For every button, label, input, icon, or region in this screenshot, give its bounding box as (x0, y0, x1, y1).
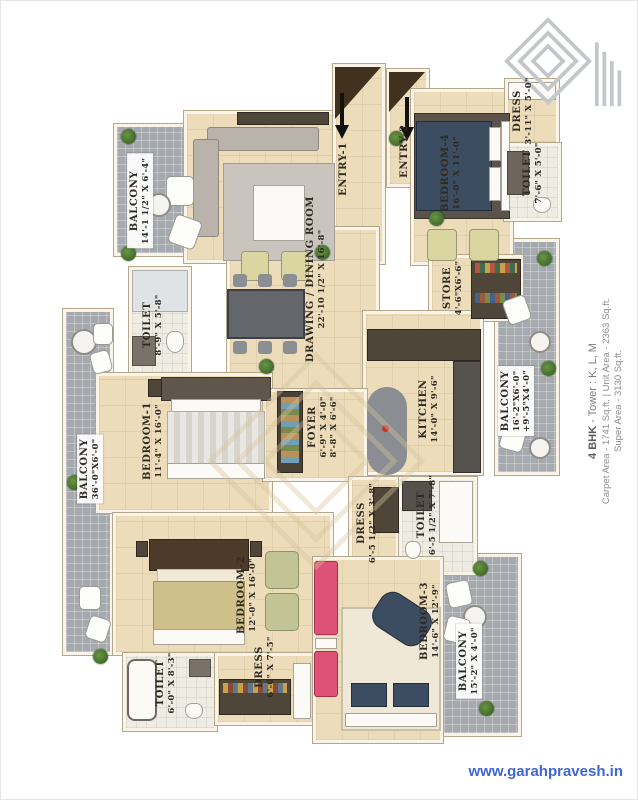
plant-icon (259, 359, 274, 374)
room-label-toilet-left: TOILET8'-9" X 5'-8" (142, 294, 164, 355)
bedroom4-chair (427, 229, 457, 261)
balcony-chair (93, 323, 113, 345)
room-label-drawing-dining: DRAWING / DINING ROOM22'-10 1/2" X 16'-8… (305, 196, 327, 362)
plant-icon (473, 561, 488, 576)
cabinet-shelves (281, 397, 299, 463)
unit-info-line1: 4 BHK - Tower : K, L, M (587, 281, 599, 521)
bedroom2-chair (265, 593, 299, 631)
balcony-table (529, 437, 551, 459)
bedroom2-bed (153, 581, 245, 631)
floor-plan-page: BALCONY14'-1 1/2" X 6'-4" BALCONY36'-0"X… (0, 0, 638, 800)
wardrobe-clothes (475, 263, 517, 273)
website-link[interactable]: www.garahpravesh.in (431, 763, 623, 780)
room-label-balcony-left: BALCONY36'-0"X6'-0" (77, 435, 103, 504)
bedroom1-duvet (167, 463, 265, 479)
plant-icon (121, 246, 136, 261)
room-label-toilet-center: TOILET6'-5 1/2" X 7'-8" (416, 475, 438, 555)
plant-icon (537, 251, 552, 266)
side-table (315, 638, 337, 649)
bathtub (127, 659, 157, 721)
nightstand (136, 541, 148, 557)
room-label-balcony-br: BALCONY15'-2" X 4'-0" (456, 623, 482, 698)
bedroom3-pink-sofa (314, 561, 338, 635)
room-label-balcony-tl: BALCONY14'-1 1/2" X 6'-4" (127, 154, 153, 249)
entry2-label: ENTRY-2 (399, 124, 411, 178)
kitchen-counter-right (453, 361, 481, 473)
room-label-bedroom2: BEDROOM-212'-0" X 16'-0" (236, 556, 258, 634)
washbasin (189, 659, 211, 677)
room-label-toilet-tr: TOILET7'-6" X 5'-0" (522, 142, 544, 203)
room-label-dress-bottom: DRESS6'-0" X 7'-5" (254, 636, 276, 697)
bedroom3-footboard (345, 713, 437, 727)
plant-icon (121, 129, 136, 144)
stove-burner (382, 425, 389, 432)
plant-icon (479, 701, 494, 716)
nightstand (250, 541, 262, 557)
dining-chair (233, 341, 247, 354)
room-label-store: STORE4'-6"X6'-6" (442, 261, 464, 316)
sofa-top (207, 127, 319, 151)
room-label-bedroom4: BEDROOM-416'-0" X 11'-0" (440, 134, 462, 212)
bedroom2-headboard (149, 539, 249, 571)
entry1-label: ENTRY-1 (338, 142, 350, 196)
bathtub-center (439, 481, 473, 543)
unit-info-line3: Super Area - 3130 Sq.ft. (613, 281, 625, 521)
balcony-table (529, 331, 551, 353)
plant-icon (93, 649, 108, 664)
dining-chair (283, 341, 297, 354)
wc (185, 703, 203, 719)
room-label-toilet-bl: TOILET6'-0" X 8'-3" (155, 652, 177, 713)
wc (166, 331, 184, 353)
coffee-table (253, 185, 305, 241)
balcony-chair (445, 579, 474, 609)
unit-info-block: 4 BHK - Tower : K, L, M Carpet Area - 17… (587, 281, 631, 521)
dining-chair (258, 341, 272, 354)
room-label-dress-tr: DRESS3'-11" X 5'-0" (512, 77, 534, 144)
room-label-balcony-right: BALCONY 16'-2"X6'-0" +9'-5"X4'-0" (498, 366, 534, 436)
bedroom2-chair (265, 551, 299, 589)
dining-chair (233, 274, 247, 287)
dining-table (227, 289, 305, 339)
kitchen-counter-top (367, 329, 481, 361)
bedroom4-pillow (489, 167, 501, 201)
room-label-foyer: FOYER 6'-9" X 4'-0" 8'-8" X 6'-6" (307, 396, 339, 457)
plant-icon (541, 361, 556, 376)
bedroom3-pillow (351, 683, 387, 707)
bedroom4-pillow (489, 127, 501, 161)
room-label-bedroom1: BEDROOM-111'-4" X 16'-0" (142, 402, 164, 480)
entry-arrow-icon (335, 93, 349, 139)
nightstand (148, 379, 162, 397)
bedroom1-headboard (161, 377, 271, 401)
dressb-wardrobe (293, 663, 311, 719)
bedroom1-bed (167, 411, 265, 465)
room-label-kitchen: KITCHEN14'-0" X 9'-6" (418, 375, 440, 442)
room-label-bedroom3: BEDROOM-314'-6" X 12'-9" (419, 582, 441, 660)
tv-unit (237, 112, 329, 125)
dining-chair (258, 274, 272, 287)
bedroom2-duvet (153, 629, 245, 645)
room-label-dress-center: DRESS6'-5 1/2" X 3'-8" (356, 483, 378, 563)
dining-chair (283, 274, 297, 287)
bedroom3-pink-sofa (314, 651, 338, 697)
balcony-chair (79, 586, 101, 610)
bedroom3-pillow (393, 683, 429, 707)
plant-icon (429, 211, 444, 226)
unit-info-line2: Carpet Area - 1741 Sq.ft. | Unit Area - … (601, 281, 613, 521)
bedroom4-chair (469, 229, 499, 261)
